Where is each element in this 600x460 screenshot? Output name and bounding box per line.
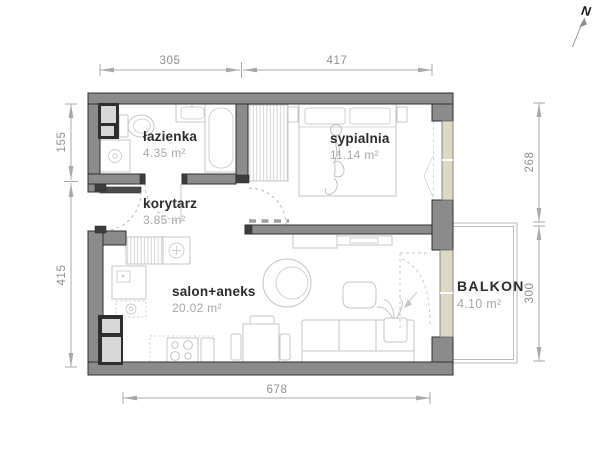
dishwasher xyxy=(116,301,146,317)
bathroom-sink xyxy=(176,104,209,122)
entry-door xyxy=(100,187,141,231)
kitchen-sink xyxy=(163,237,190,264)
washing-machine xyxy=(100,140,130,172)
floor-plan-drawing xyxy=(0,0,600,460)
bathtub xyxy=(205,104,237,172)
coffee-table xyxy=(343,282,376,308)
dining-table xyxy=(201,316,290,365)
shaft-kitchen xyxy=(98,315,123,365)
balcony-outline xyxy=(448,223,517,363)
bedroom-window-swing xyxy=(424,121,434,200)
fridge xyxy=(112,266,146,299)
floor-plan: łazienka 4.35 m² korytarz 3.85 m² sypial… xyxy=(0,0,600,460)
balcony-door-swing xyxy=(400,253,431,328)
dimension-line-top xyxy=(100,62,432,78)
bedroom-window xyxy=(442,121,453,200)
dimension-line-bottom xyxy=(123,392,430,404)
balcony-door xyxy=(440,250,453,337)
armchair xyxy=(263,259,311,307)
shaft-bathroom xyxy=(98,103,119,139)
bed xyxy=(288,104,407,196)
entry-closet xyxy=(126,237,163,264)
wardrobe xyxy=(248,105,288,181)
bathroom-door xyxy=(145,184,182,221)
tv-cabinet xyxy=(293,234,392,248)
dimension-line-left xyxy=(64,104,78,367)
north-arrow-icon xyxy=(573,18,587,48)
toilet xyxy=(119,115,154,137)
dimension-line-right xyxy=(533,103,545,361)
bedroom-door xyxy=(249,188,289,225)
